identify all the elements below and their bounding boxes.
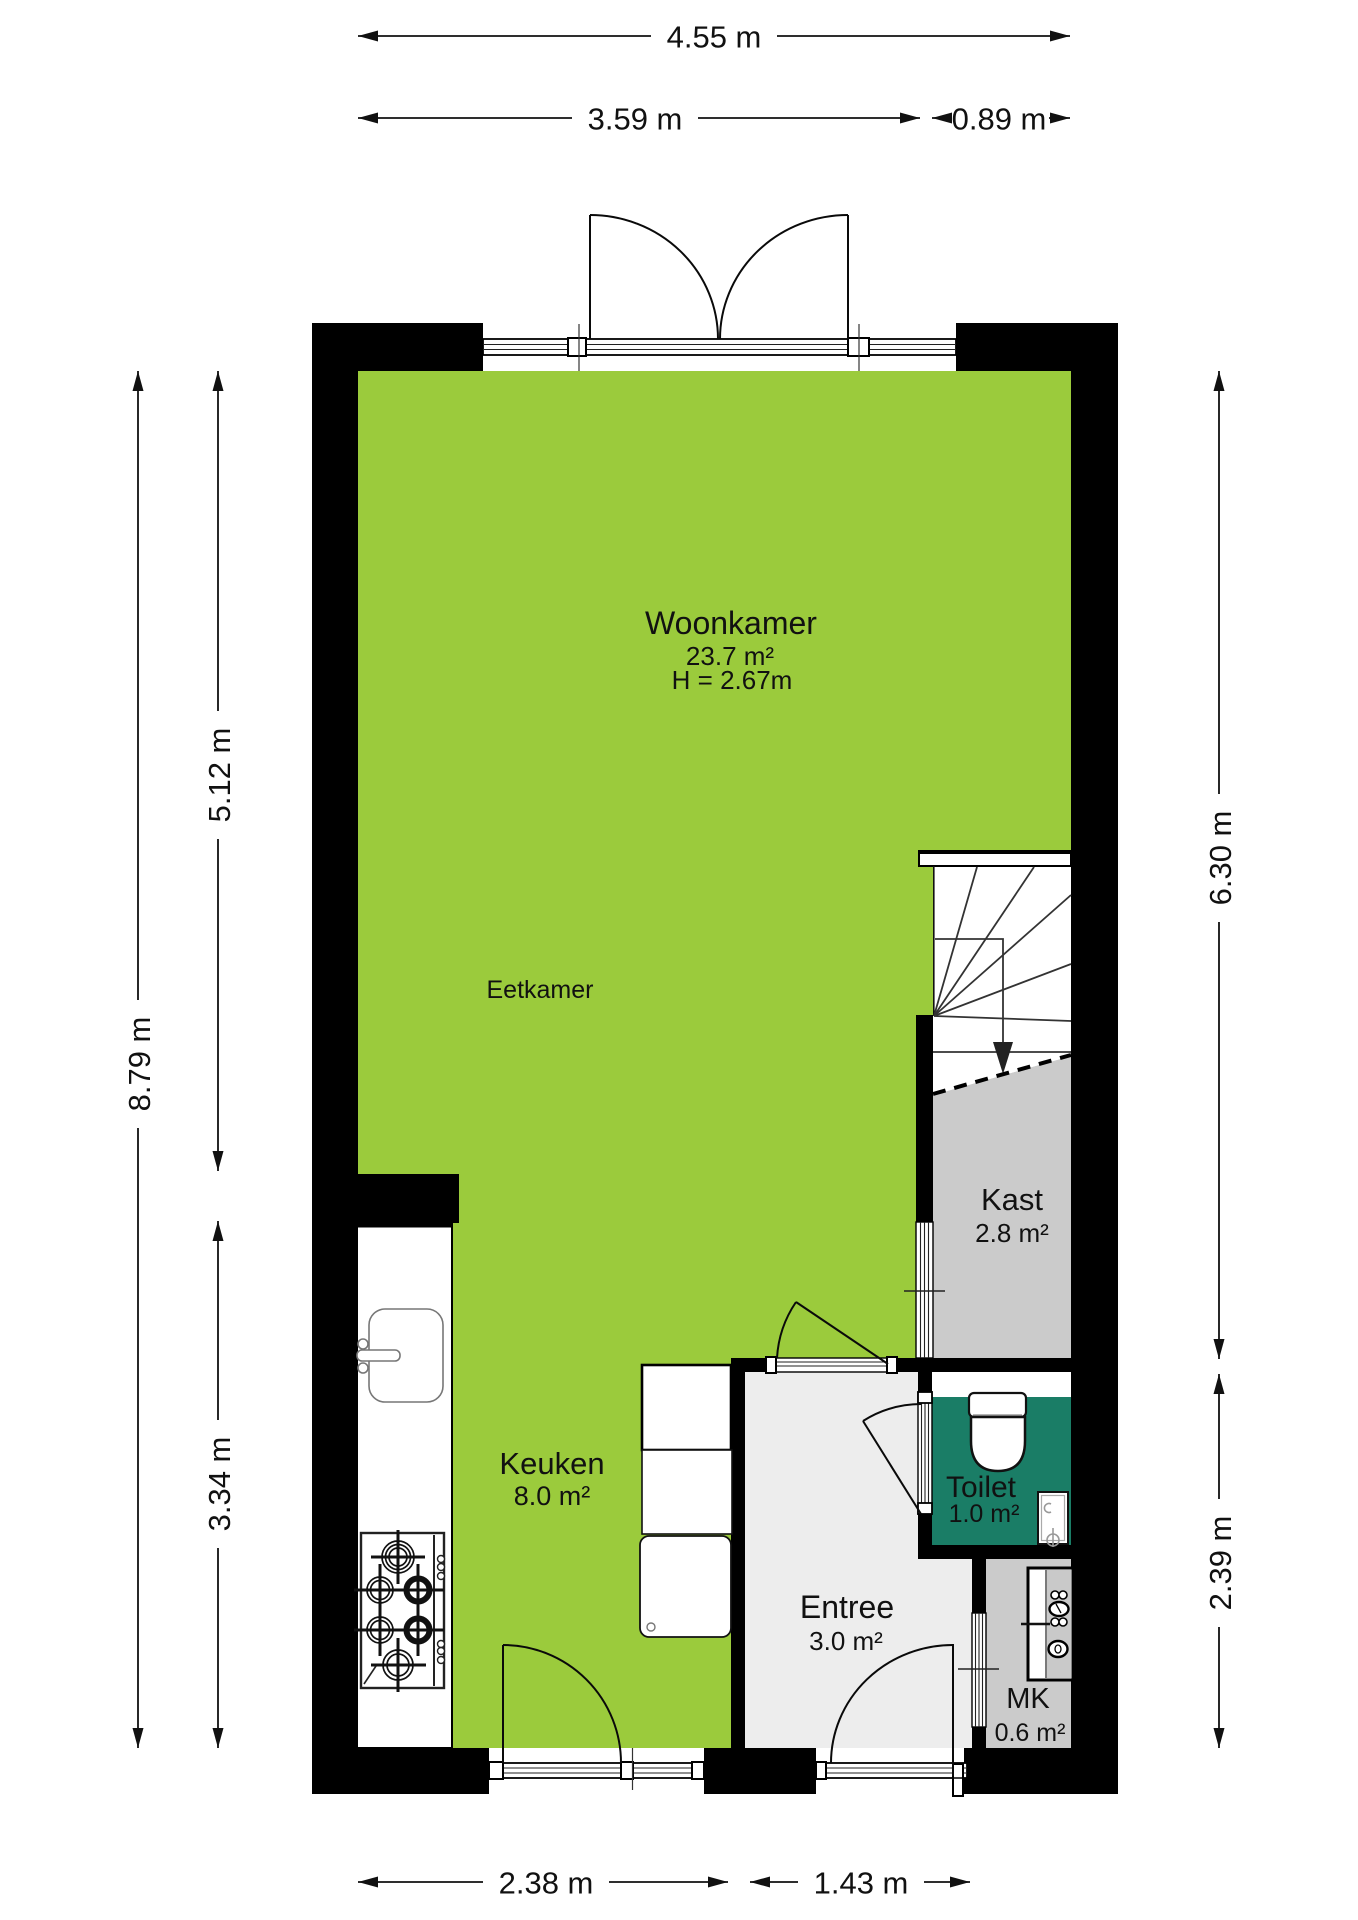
svg-text:4.55 m: 4.55 m bbox=[667, 20, 762, 55]
svg-text:8.0 m²: 8.0 m² bbox=[514, 1481, 591, 1511]
svg-text:H = 2.67m: H = 2.67m bbox=[672, 665, 793, 695]
svg-text:Kast: Kast bbox=[981, 1182, 1043, 1217]
svg-text:0.6 m²: 0.6 m² bbox=[995, 1719, 1066, 1747]
svg-text:1.43 m: 1.43 m bbox=[814, 1866, 909, 1901]
svg-text:2.8 m²: 2.8 m² bbox=[975, 1218, 1049, 1248]
svg-text:1.0 m²: 1.0 m² bbox=[949, 1500, 1020, 1528]
svg-text:8.79 m: 8.79 m bbox=[122, 1017, 157, 1112]
svg-text:2.39 m: 2.39 m bbox=[1203, 1516, 1238, 1611]
svg-text:5.12 m: 5.12 m bbox=[202, 728, 237, 823]
svg-text:3.0 m²: 3.0 m² bbox=[809, 1626, 883, 1656]
svg-text:Entree: Entree bbox=[800, 1589, 894, 1625]
svg-text:2.38 m: 2.38 m bbox=[499, 1866, 594, 1901]
svg-text:6.30 m: 6.30 m bbox=[1203, 811, 1238, 906]
svg-text:Keuken: Keuken bbox=[499, 1446, 604, 1481]
svg-text:0.89 m: 0.89 m bbox=[952, 102, 1047, 137]
svg-text:3.34 m: 3.34 m bbox=[202, 1437, 237, 1532]
svg-text:3.59 m: 3.59 m bbox=[588, 102, 683, 137]
svg-text:Woonkamer: Woonkamer bbox=[645, 605, 817, 641]
svg-text:MK: MK bbox=[1006, 1683, 1050, 1715]
svg-text:Eetkamer: Eetkamer bbox=[487, 976, 594, 1004]
